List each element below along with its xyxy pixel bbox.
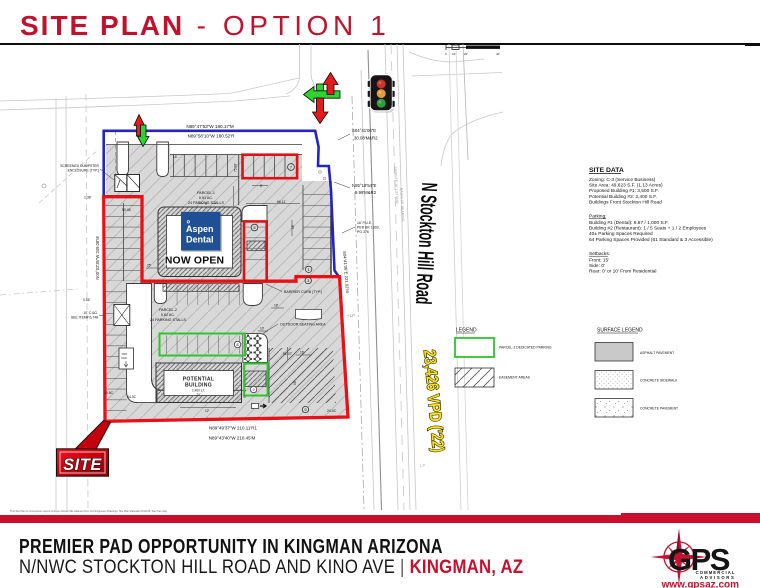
svg-text:Front: 15': Front: 15' [589, 258, 609, 264]
svg-text:S04°41'06"E: S04°41'06"E [352, 128, 376, 133]
svg-text:N85°18'54"E: N85°18'54"E [352, 183, 377, 188]
svg-text:PAD: PAD [122, 356, 128, 360]
svg-text:LEGEND: LEGEND [456, 328, 477, 334]
svg-text:Side: 0': Side: 0' [589, 263, 605, 269]
svg-text:LP: LP [420, 463, 426, 468]
svg-text:Zoning: C-3 (Service Business): Zoning: C-3 (Service Business) [589, 177, 656, 183]
svg-text:16': 16' [300, 351, 305, 355]
svg-text:Proposed Building #1: 3,500 S.: Proposed Building #1: 3,500 S.F. [589, 188, 659, 194]
svg-text:www.gpsaz.com: www.gpsaz.com [661, 580, 740, 588]
svg-text:S04°41'06"E 221.02'M: S04°41'06"E 221.02'M [342, 251, 350, 294]
svg-text:SURFACE LEGEND: SURFACE LEGEND [597, 328, 643, 334]
svg-text:64 Parking Spaces Provided (61: 64 Parking Spaces Provided (61 Standard … [589, 237, 713, 243]
svg-text:PARCEL-1: PARCEL-1 [197, 191, 215, 195]
svg-text:SITE DATA: SITE DATA [589, 167, 624, 174]
svg-text:BARRIER CURB (TYP.): BARRIER CURB (TYP.) [284, 290, 322, 294]
svg-text:Building #1 (Dental): 6.67 /: Building #1 (Dental): 6.67 / 1,000 S.F. [589, 220, 669, 226]
svg-text:0: 0 [445, 52, 447, 56]
svg-text:Dental: Dental [186, 235, 214, 245]
svg-text:20': 20' [464, 52, 468, 56]
svg-text:19.5C: 19.5C [104, 391, 114, 395]
svg-text:This Site Plan is Conceptual.: This Site Plan is Conceptual. Layout of … [10, 510, 168, 513]
svg-text:50.46': 50.46' [122, 208, 131, 212]
svg-text:ASPHALT PAVEMENT: ASPHALT PAVEMENT [640, 351, 674, 355]
svg-text:CONCRETE PAVEMENT: CONCRETE PAVEMENT [640, 407, 678, 411]
svg-text:EASEMENT AREAS: EASEMENT AREAS [499, 376, 531, 380]
svg-text:16': 16' [173, 155, 178, 159]
svg-text:Buildings Front Stockton Hill: Buildings Front Stockton Hill Road [589, 199, 662, 205]
svg-text:N89°49'37"W 210.11'R1: N89°49'37"W 210.11'R1 [209, 426, 258, 431]
svg-text:0.62 AC.: 0.62 AC. [161, 313, 175, 317]
svg-text:PARCEL-2 DEDICATED PARKING: PARCEL-2 DEDICATED PARKING [499, 346, 552, 350]
svg-text:N89°47'53"W 180.17'M: N89°47'53"W 180.17'M [186, 124, 234, 129]
svg-text:18': 18' [293, 380, 297, 385]
svg-text:+LP: +LP [347, 313, 355, 318]
svg-text:SEE ITEM# 6,748: SEE ITEM# 6,748 [71, 316, 98, 320]
svg-text:CONCRETE SIDEWALK: CONCRETE SIDEWALK [640, 379, 678, 383]
svg-text:44.0C: 44.0C [127, 395, 137, 399]
svg-text:NOW OPEN: NOW OPEN [165, 256, 224, 267]
svg-text:24 PARKING STALLS: 24 PARKING STALLS [150, 318, 186, 322]
svg-text:Potential Building #2: 2,400 S: Potential Building #2: 2,400 S.F. [589, 194, 657, 200]
svg-text:2,400 s.f.: 2,400 s.f. [192, 388, 205, 392]
svg-text:24.4C: 24.4C [327, 409, 337, 413]
svg-text:9': 9' [243, 395, 247, 398]
svg-text:0.56': 0.56' [83, 298, 91, 302]
svg-text:Site Area: 49,623 S.F. (1.13 A: Site Area: 49,623 S.F. (1.13 Acres) [589, 183, 663, 189]
svg-text:1.38': 1.38' [84, 196, 92, 200]
svg-text:Aspen: Aspen [186, 224, 214, 234]
svg-text:SAMSITE 26' LST R/W: SAMSITE 26' LST R/W [393, 166, 399, 204]
svg-text:9': 9' [205, 202, 208, 206]
svg-text:30.08'M&R2: 30.08'M&R2 [354, 136, 378, 141]
svg-text:ENCLOSURE (TYP.): ENCLOSURE (TYP.) [68, 169, 99, 173]
svg-text:N00°02'35"W 249.08'M: N00°02'35"W 249.08'M [95, 236, 100, 280]
svg-text:18': 18' [291, 224, 295, 229]
svg-text:BASIS OF BEARING: BASIS OF BEARING [399, 188, 405, 222]
svg-text:40': 40' [496, 52, 500, 56]
svg-text:8': 8' [260, 184, 263, 188]
svg-text:Rear: 0' or 10' From Resident: Rear: 0' or 10' From Residential [589, 269, 656, 275]
svg-text:12': 12' [205, 409, 210, 413]
svg-text:N Stockton Hill Road: N Stockton Hill Road [411, 182, 442, 305]
svg-text:75.08': 75.08' [234, 163, 238, 172]
svg-text:PER BK 1303,: PER BK 1303, [357, 226, 380, 230]
svg-text:OUTDOOR SEATING AREA: OUTDOOR SEATING AREA [280, 323, 326, 327]
svg-text:10': 10' [260, 327, 265, 331]
svg-text:10' C.&G.: 10' C.&G. [83, 311, 98, 315]
svg-text:N89°58'10"W 180.52'R: N89°58'10"W 180.52'R [188, 134, 236, 139]
svg-text:10': 10' [452, 52, 456, 56]
svg-text:SCREENED DUMPSTER: SCREENED DUMPSTER [60, 164, 99, 168]
svg-text:PARCEL-2: PARCEL-2 [159, 308, 177, 312]
svg-text:16' P.U.E.: 16' P.U.E. [357, 221, 372, 225]
svg-text:N89°43'40"W 210.45'M: N89°43'40"W 210.45'M [209, 436, 256, 441]
svg-text:Building #2 (Restaurant): 1 /: Building #2 (Restaurant): 1 / 5 Seats + … [589, 226, 707, 232]
svg-text:9.99'M&R2: 9.99'M&R2 [355, 190, 377, 195]
svg-text:0.91 AC.: 0.91 AC. [199, 196, 213, 200]
svg-text:70': 70' [196, 393, 201, 397]
svg-text:PG 376: PG 376 [357, 230, 369, 234]
svg-text:40± Parking Spaces Required: 40± Parking Spaces Required [589, 231, 653, 237]
svg-text:23,426 VPD ('22): 23,426 VPD ('22) [420, 349, 447, 453]
svg-text:SITE: SITE [63, 456, 102, 474]
svg-text:25': 25' [147, 264, 152, 268]
svg-text:18': 18' [274, 304, 279, 308]
